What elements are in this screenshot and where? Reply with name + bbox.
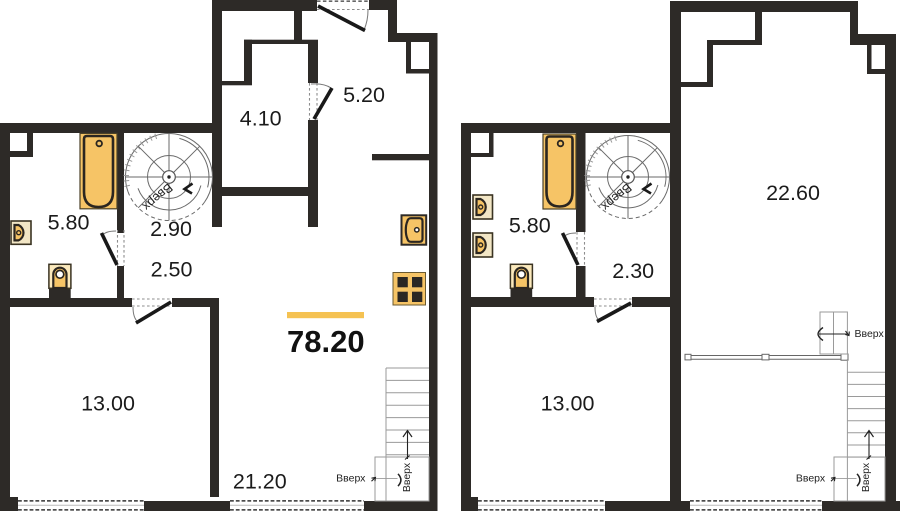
- svg-text:22.60: 22.60: [766, 181, 820, 205]
- svg-text:Вверх: Вверх: [336, 473, 366, 485]
- svg-text:5.80: 5.80: [509, 213, 551, 237]
- svg-text:21.20: 21.20: [233, 470, 287, 494]
- svg-text:2.30: 2.30: [612, 259, 654, 283]
- svg-text:13.00: 13.00: [81, 392, 135, 416]
- svg-text:78.20: 78.20: [287, 324, 365, 359]
- svg-text:Вверх: Вверх: [860, 462, 872, 492]
- svg-text:5.80: 5.80: [48, 211, 90, 235]
- svg-text:2.90: 2.90: [150, 217, 192, 241]
- svg-text:Вверх: Вверх: [401, 462, 413, 492]
- svg-text:4.10: 4.10: [240, 107, 282, 131]
- svg-text:Вверх: Вверх: [855, 328, 885, 340]
- svg-text:2.50: 2.50: [151, 258, 193, 282]
- svg-text:Вверх: Вверх: [796, 473, 826, 485]
- svg-text:5.20: 5.20: [343, 83, 385, 107]
- svg-text:13.00: 13.00: [541, 392, 595, 416]
